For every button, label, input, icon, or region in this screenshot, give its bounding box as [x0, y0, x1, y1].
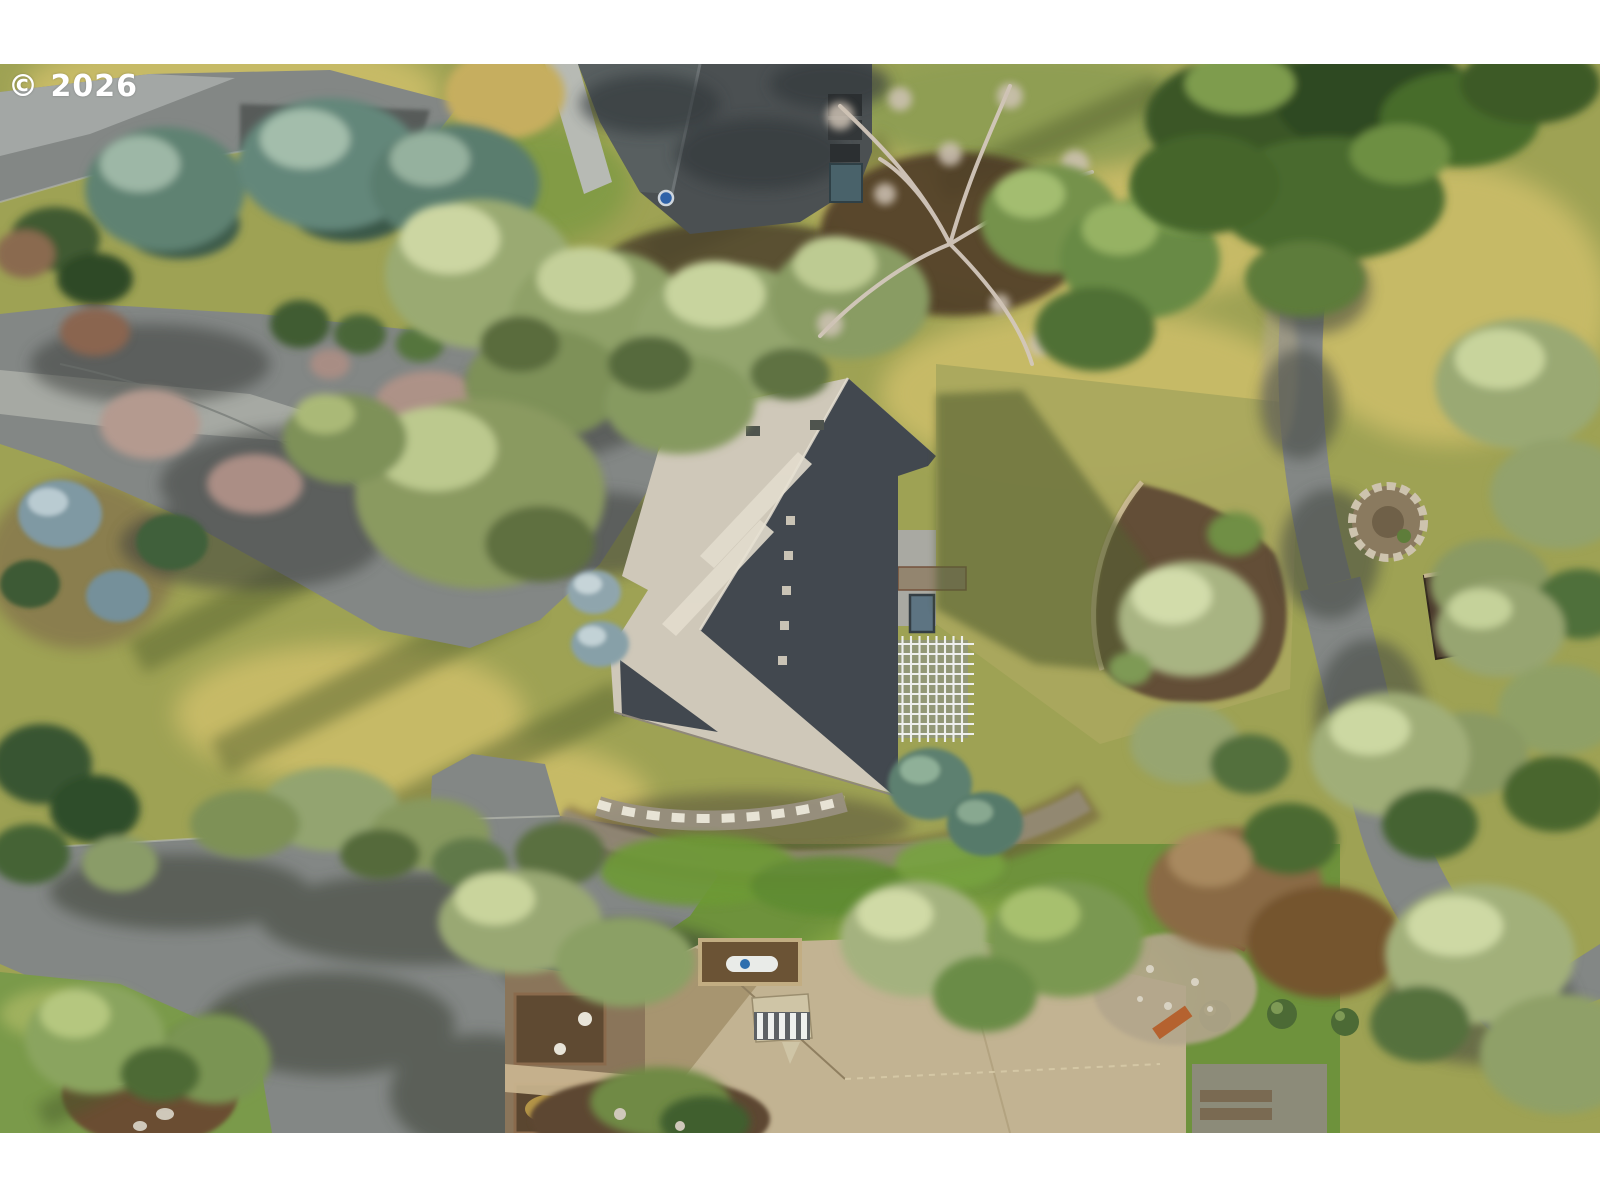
stone-circle — [1352, 486, 1424, 558]
copyright-watermark: © 2026 — [8, 72, 138, 102]
round-skylight — [659, 191, 673, 205]
hot-tub-awning — [700, 940, 800, 984]
aerial-photo — [0, 64, 1600, 1133]
page: © 2026 — [0, 0, 1600, 1200]
pergola — [886, 636, 974, 742]
letterbox-top — [0, 0, 1600, 64]
hot-tub-cover — [726, 956, 778, 972]
skylight — [910, 595, 934, 632]
letterbox-bottom — [0, 1133, 1600, 1200]
